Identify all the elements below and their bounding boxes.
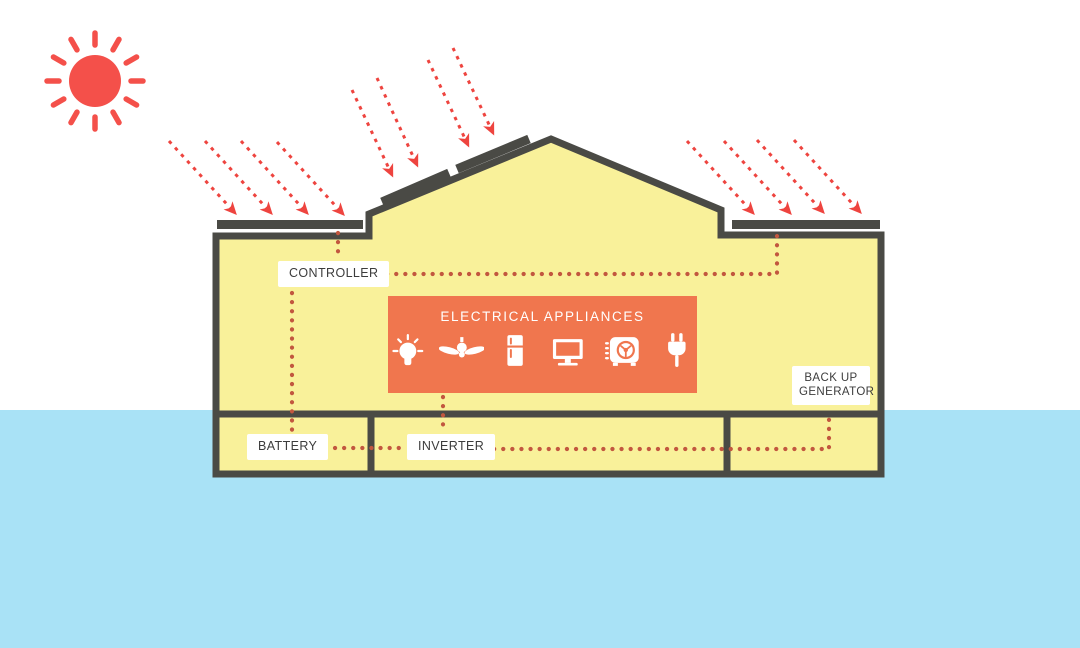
ceiling-fan-icon xyxy=(439,329,485,373)
controller-label: CONTROLLER xyxy=(278,261,389,287)
refrigerator-icon xyxy=(495,329,535,373)
solar-panel-left-flat xyxy=(217,220,363,229)
sun-rays-right xyxy=(687,140,860,213)
television-icon xyxy=(546,329,590,373)
backup-generator-label: BACK UP GENERATOR xyxy=(792,366,870,405)
light-bulb-icon xyxy=(388,329,428,373)
power-plug-icon xyxy=(657,329,697,373)
sun-rays-middle xyxy=(352,48,493,175)
inverter-label: INVERTER xyxy=(407,434,495,460)
electrical-appliances-title: ELECTRICAL APPLIANCES xyxy=(388,296,697,324)
sun-rays-left xyxy=(169,141,343,214)
appliance-icons-row xyxy=(388,329,697,373)
air-conditioner-icon xyxy=(601,329,647,373)
solar-panel-right-flat xyxy=(732,220,880,229)
battery-label: BATTERY xyxy=(247,434,328,460)
solar-power-house-diagram: CONTROLLER BATTERY INVERTER BACK UP GENE… xyxy=(0,0,1080,648)
sun-icon xyxy=(47,33,143,129)
electrical-appliances-box: ELECTRICAL APPLIANCES xyxy=(388,296,697,393)
